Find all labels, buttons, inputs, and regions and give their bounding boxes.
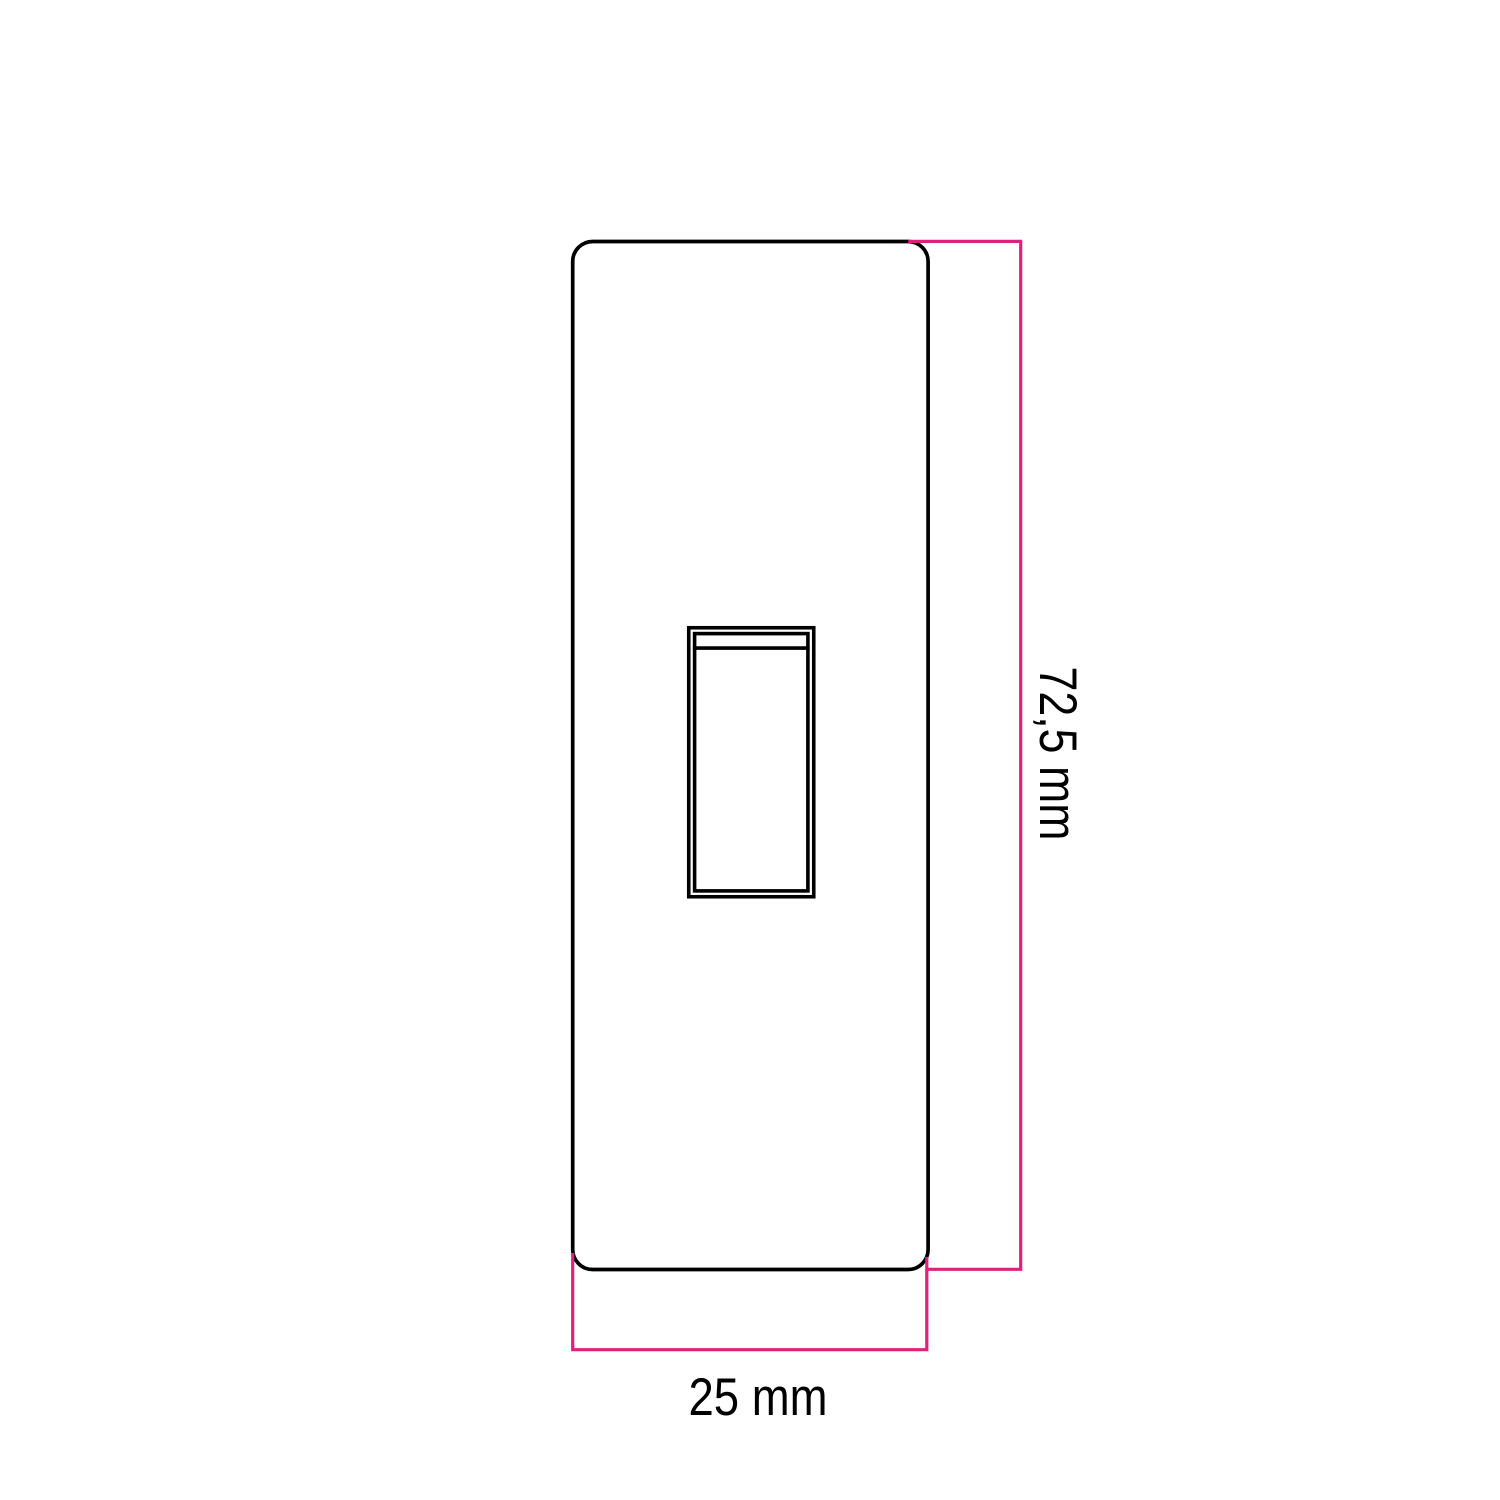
svg-text:25 mm: 25 mm bbox=[689, 1368, 828, 1427]
svg-text:72,5 mm: 72,5 mm bbox=[1028, 667, 1087, 841]
